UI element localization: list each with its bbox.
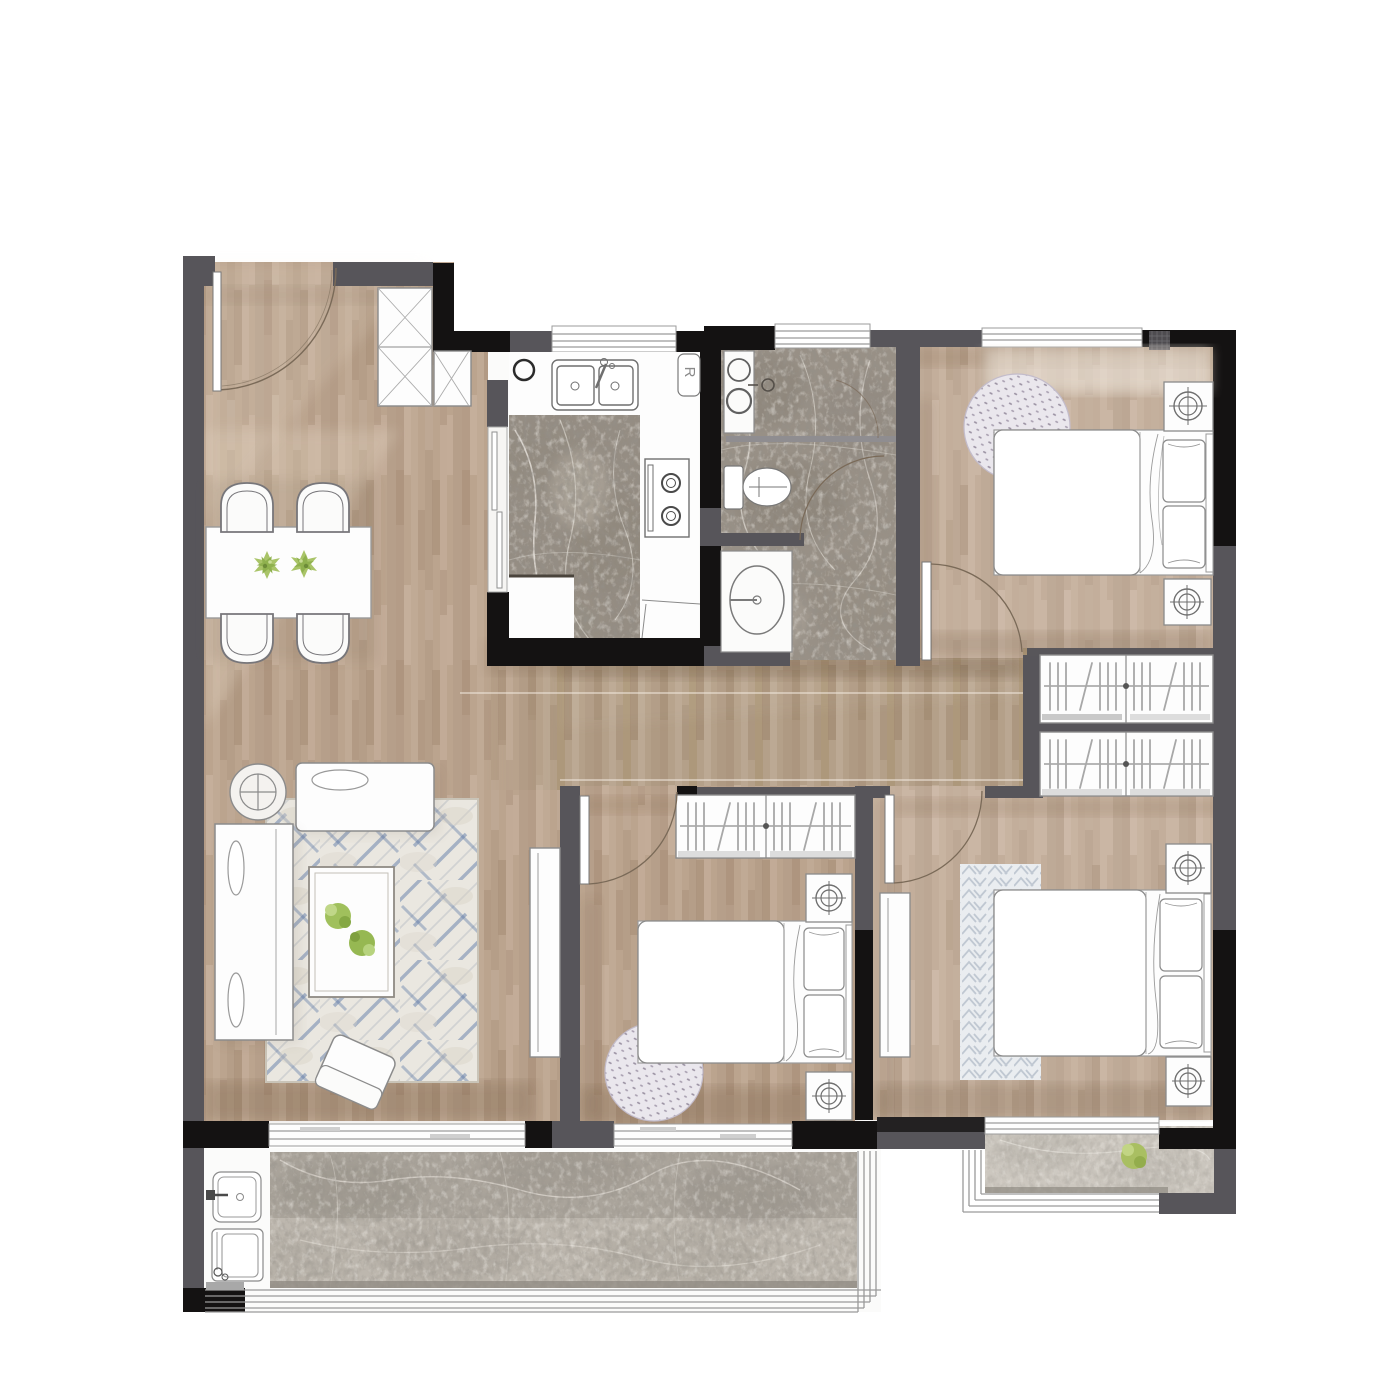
svg-text:R: R	[681, 367, 698, 378]
